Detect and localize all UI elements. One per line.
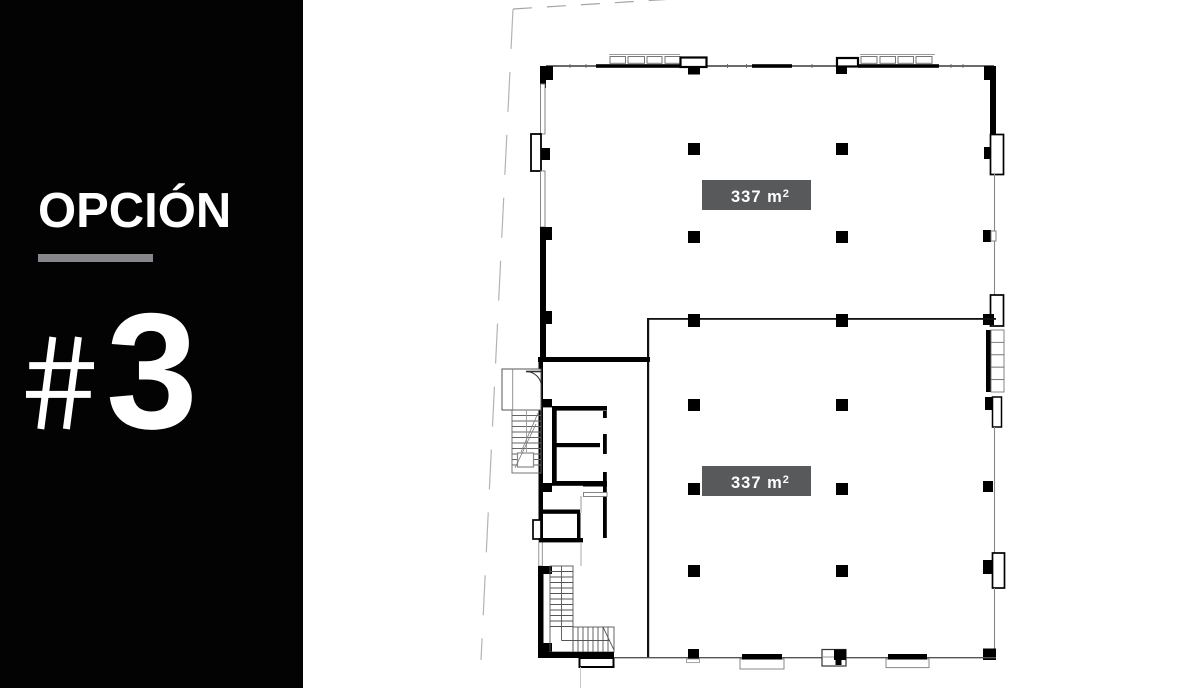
svg-text:337 m2: 337 m2: [731, 474, 790, 492]
svg-text:337 m2: 337 m2: [731, 188, 790, 206]
